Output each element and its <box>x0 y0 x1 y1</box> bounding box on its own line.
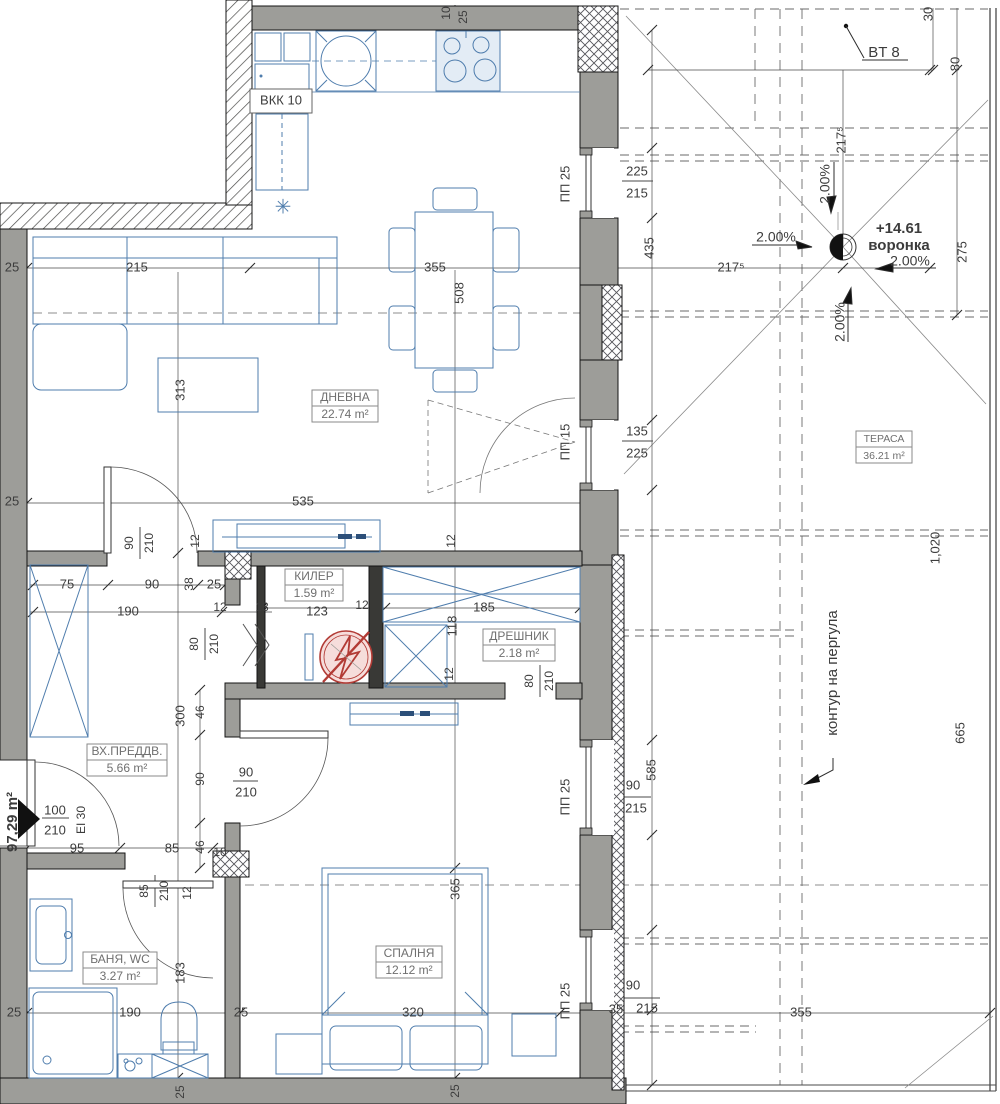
dim: 90 <box>239 764 253 779</box>
room-label-dnevna: ДНЕВНА22.74 m² <box>312 390 378 422</box>
dim: 35 <box>609 1001 623 1016</box>
terrace-door-swing <box>428 398 575 493</box>
window-pp25-mid <box>578 740 614 835</box>
total-area: 97,29 m² <box>4 792 21 852</box>
dim: 210 <box>207 634 221 654</box>
shower <box>29 988 117 1078</box>
dim: 365 <box>447 878 462 900</box>
slope-label: 2.00% <box>756 229 796 245</box>
dim: 46 <box>193 705 207 719</box>
room-area: 36.21 m² <box>863 450 905 462</box>
dim: 1,020 <box>927 532 942 565</box>
dim: 210 <box>542 671 556 691</box>
dim: 12 <box>355 598 369 612</box>
dim: 215 <box>636 1000 658 1015</box>
washing-machine <box>118 1054 208 1078</box>
dim: 90 <box>626 977 640 992</box>
dim: 535 <box>292 493 314 508</box>
dim: 85 <box>137 884 151 898</box>
room-label-vhpredv: ВХ.ПРЕДДВ.5.66 m² <box>87 744 167 776</box>
dim: 215 <box>126 259 148 274</box>
room-area: 1.59 m² <box>294 586 335 600</box>
room-label-spalnya: СПАЛНЯ12.12 m² <box>376 946 442 978</box>
room-name: ВХ.ПРЕДДВ. <box>91 744 162 758</box>
room-label-terasa: ТЕРАСА36.21 m² <box>856 431 912 463</box>
dim: 25 <box>173 1085 187 1099</box>
dim: 123 <box>306 603 328 618</box>
dim: 25 <box>448 1084 462 1098</box>
dim: 210 <box>157 881 171 901</box>
vkk-label: ВКК 10 <box>260 92 302 107</box>
dim: 135 <box>626 423 648 438</box>
dim: 80 <box>522 674 536 688</box>
sofa <box>33 237 337 390</box>
slope-label: 2.00% <box>832 302 848 342</box>
electric-boiler-symbol <box>320 631 372 683</box>
dim: 217⁵ <box>833 126 848 153</box>
room-area: 2.18 m² <box>499 646 540 660</box>
room-area: 12.12 m² <box>385 963 432 977</box>
dim: 210 <box>235 784 257 799</box>
tv-console <box>213 520 380 552</box>
dim: 10 <box>213 845 227 859</box>
dim: 435 <box>641 237 656 259</box>
window-pp15-terrace-door <box>578 420 614 490</box>
dim: 10 <box>439 6 453 20</box>
room-name: БАНЯ, WC <box>90 952 150 966</box>
dim: 85 <box>165 840 179 855</box>
dim: 217⁵ <box>717 259 744 274</box>
floor-plan-canvas: ДНЕВНА22.74 m²КИЛЕР1.59 m²ДРЕШНИК2.18 m²… <box>0 0 1000 1104</box>
dim: 12 <box>180 886 194 900</box>
drain-symbol <box>830 210 856 260</box>
window-pp25-top <box>578 148 614 218</box>
dim: EI 30 <box>74 806 88 834</box>
dim: 75 <box>60 576 74 591</box>
window-pp25-bottom <box>578 930 614 1010</box>
dim: 25 <box>234 1004 248 1019</box>
dim: 508 <box>451 282 466 304</box>
dim: 225 <box>626 163 648 178</box>
dim: 275 <box>954 241 969 263</box>
dim: 25 <box>7 1004 21 1019</box>
dim: 12 <box>442 667 456 681</box>
dim: 320 <box>402 1004 424 1019</box>
room-area: 5.66 m² <box>107 761 148 775</box>
dim: 190 <box>117 603 139 618</box>
dim: 190 <box>119 1004 141 1019</box>
nightstand <box>276 1034 322 1074</box>
radiator-symbol: ✳ <box>275 196 292 218</box>
room-label-banya: БАНЯ, WC3.27 m² <box>83 952 157 984</box>
slope-label: 2.00% <box>817 164 833 204</box>
dim: 90 <box>626 777 640 792</box>
dim: 215 <box>625 800 647 815</box>
room-label-dreshnik: ДРЕШНИК2.18 m² <box>483 629 555 661</box>
terrace-lines <box>33 8 996 1091</box>
dim: 183 <box>172 962 187 984</box>
fraction-bars <box>42 5 660 998</box>
toilet <box>161 1002 197 1054</box>
dim: 118 <box>444 616 459 637</box>
room-name: ДРЕШНИК <box>489 629 548 643</box>
dim: 12 <box>188 534 202 548</box>
dim: ПП 25 <box>557 166 572 203</box>
dim: 90 <box>122 536 136 550</box>
dreshnik-wardrobes <box>383 567 580 687</box>
kitchen-stove <box>436 31 500 91</box>
dim: 30 <box>920 7 935 21</box>
dim: 215 <box>626 185 648 200</box>
room-name: ТЕРАСА <box>864 433 905 445</box>
room-area: 22.74 m² <box>321 407 368 421</box>
dim: 585 <box>643 759 658 781</box>
floor-plan-drawing: ДНЕВНА22.74 m²КИЛЕР1.59 m²ДРЕШНИК2.18 m²… <box>0 0 1000 1104</box>
bt8-label: BT 8 <box>868 44 899 61</box>
dim: 13 <box>255 600 269 614</box>
dim: 25 <box>5 493 19 508</box>
dim: 12 <box>213 600 227 614</box>
slope-label: 2.00% <box>890 253 930 269</box>
dim: 210 <box>142 533 156 553</box>
dim: 665 <box>952 722 967 744</box>
room-name: КИЛЕР <box>294 569 334 583</box>
dim: ПП 25 <box>557 779 572 816</box>
dim: 90 <box>193 772 207 786</box>
room-name: СПАЛНЯ <box>384 946 435 960</box>
dim: 90 <box>145 576 159 591</box>
dim: 80 <box>187 637 201 651</box>
dim: 300 <box>172 705 187 727</box>
dim: 25 <box>207 576 221 591</box>
drain-level: +14.61 <box>876 220 922 237</box>
pergola-leader <box>803 758 833 785</box>
kiler-shelf <box>305 634 313 680</box>
dim: 185 <box>473 599 495 614</box>
room-area: 3.27 m² <box>100 969 141 983</box>
bath-sink <box>30 899 72 971</box>
dim: 355 <box>424 259 446 274</box>
dim: 38 <box>182 577 196 591</box>
dim: 12 <box>444 534 458 548</box>
dim: 210 <box>44 822 66 837</box>
drain-name: воронка <box>868 237 930 254</box>
room-label-kiler: КИЛЕР1.59 m² <box>285 569 343 601</box>
dim: 25 <box>5 259 19 274</box>
dim: 313 <box>172 379 187 401</box>
hatched-walls <box>0 0 252 229</box>
dim: 100 <box>44 802 66 817</box>
dim: 95 <box>70 840 84 855</box>
dim: 225 <box>626 445 648 460</box>
dim: 25 <box>456 10 470 24</box>
dresser <box>512 1014 556 1056</box>
room-name: ДНЕВНА <box>320 390 369 404</box>
dim: ПП 15 <box>557 424 572 461</box>
dim: ПП 25 <box>557 983 572 1020</box>
dim: 355 <box>790 1004 812 1019</box>
pergola-note: контур на пергула <box>824 610 841 736</box>
dim: 80 <box>947 57 962 71</box>
hall-console <box>350 703 458 725</box>
dim: 46 <box>193 840 207 854</box>
